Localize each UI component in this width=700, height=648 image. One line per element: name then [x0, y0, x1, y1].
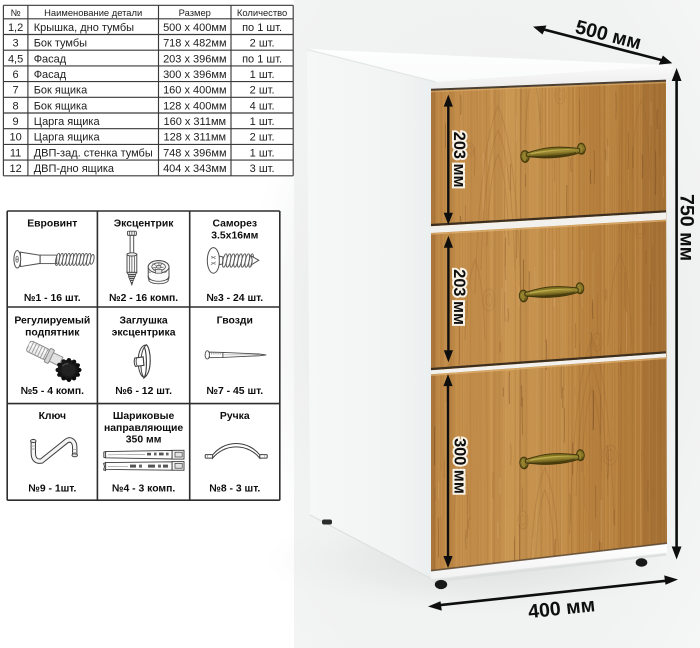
svg-text:128 х 311мм: 128 х 311мм [163, 132, 226, 144]
svg-text:по 1 шт.: по 1 шт. [242, 53, 282, 65]
svg-text:№4 - 3 комп.: №4 - 3 комп. [112, 484, 175, 495]
svg-text:12: 12 [9, 163, 21, 175]
svg-text:Бок ящика: Бок ящика [34, 100, 88, 112]
svg-text:7: 7 [13, 85, 19, 97]
svg-text:8: 8 [13, 100, 19, 112]
svg-text:Евровинт: Евровинт [27, 219, 77, 230]
svg-text:Царга ящика: Царга ящика [34, 116, 101, 128]
svg-text:1 шт.: 1 шт. [250, 147, 275, 159]
svg-text:350 мм: 350 мм [126, 435, 162, 446]
svg-text:1 шт.: 1 шт. [250, 69, 275, 81]
svg-text:Заглушка: Заглушка [119, 316, 167, 327]
svg-text:Шариковые: Шариковые [113, 411, 175, 422]
svg-text:Ручка: Ручка [220, 411, 250, 422]
svg-text:№3 - 24 шт.: №3 - 24 шт. [206, 293, 263, 304]
svg-text:404 х 343мм: 404 х 343мм [163, 163, 226, 175]
svg-text:№2 - 16 комп.: №2 - 16 комп. [109, 293, 178, 304]
svg-text:Гвозди: Гвозди [217, 316, 253, 327]
svg-text:10: 10 [9, 132, 21, 144]
svg-text:1 шт.: 1 шт. [250, 116, 275, 128]
svg-text:эксцентрика: эксцентрика [112, 327, 176, 338]
svg-text:300 х 396мм: 300 х 396мм [163, 69, 226, 81]
svg-text:Бок ящика: Бок ящика [34, 85, 88, 97]
svg-text:Крышка, дно тумбы: Крышка, дно тумбы [34, 22, 134, 34]
svg-text:748 х 396мм: 748 х 396мм [163, 147, 226, 159]
svg-text:3 шт.: 3 шт. [250, 163, 275, 175]
svg-text:№8 - 3 шт.: №8 - 3 шт. [209, 484, 260, 495]
svg-text:№: № [11, 7, 21, 18]
svg-text:160 х 400мм: 160 х 400мм [163, 85, 226, 97]
svg-text:подпятник: подпятник [25, 327, 80, 338]
svg-text:2 шт.: 2 шт. [250, 85, 275, 97]
svg-text:по 1 шт.: по 1 шт. [242, 22, 282, 34]
svg-text:6: 6 [13, 69, 19, 81]
svg-text:ДВП-зад. стенка тумбы: ДВП-зад. стенка тумбы [34, 147, 153, 159]
svg-text:2 шт.: 2 шт. [250, 38, 275, 50]
svg-text:4 шт.: 4 шт. [250, 100, 275, 112]
svg-text:Размер: Размер [179, 7, 211, 18]
svg-text:Саморез: Саморез [212, 219, 257, 230]
svg-text:№5 - 4 комп.: №5 - 4 комп. [21, 386, 84, 397]
svg-text:4,5: 4,5 [8, 53, 23, 65]
svg-text:№9 - 1шт.: №9 - 1шт. [28, 484, 76, 495]
svg-text:9: 9 [13, 116, 19, 128]
svg-text:№7 - 45 шт.: №7 - 45 шт. [206, 386, 263, 397]
svg-text:203 мм: 203 мм [450, 132, 468, 188]
svg-text:203 х 396мм: 203 х 396мм [163, 53, 226, 65]
svg-text:ДВП-дно ящика: ДВП-дно ящика [34, 163, 115, 175]
svg-text:11: 11 [10, 147, 21, 159]
svg-text:направляющие: направляющие [104, 423, 183, 434]
svg-text:Наименование детали: Наименование детали [44, 7, 142, 18]
svg-text:300 мм: 300 мм [450, 438, 468, 494]
svg-text:3.5х16мм: 3.5х16мм [211, 230, 258, 241]
svg-text:Бок тумбы: Бок тумбы [34, 38, 87, 50]
svg-text:Эксцентрик: Эксцентрик [114, 219, 174, 230]
svg-text:3: 3 [13, 38, 19, 50]
svg-text:Регулируемый: Регулируемый [14, 316, 90, 327]
svg-text:Фасад: Фасад [34, 69, 67, 81]
svg-text:128 х 400мм: 128 х 400мм [163, 100, 226, 112]
svg-text:160 х 311мм: 160 х 311мм [163, 116, 226, 128]
svg-text:Количество: Количество [237, 7, 287, 18]
svg-text:Царга ящика: Царга ящика [34, 132, 101, 144]
svg-text:2 шт.: 2 шт. [250, 132, 275, 144]
svg-text:Фасад: Фасад [34, 53, 67, 65]
svg-text:№1 - 16 шт.: №1 - 16 шт. [24, 293, 81, 304]
svg-text:500 х 400мм: 500 х 400мм [163, 22, 226, 34]
svg-text:203 мм: 203 мм [450, 269, 468, 325]
svg-text:№6 - 12 шт.: №6 - 12 шт. [115, 386, 172, 397]
svg-text:750 мм: 750 мм [676, 194, 698, 261]
svg-text:718 х 482мм: 718 х 482мм [163, 38, 226, 50]
svg-text:1,2: 1,2 [8, 22, 23, 34]
svg-text:Ключ: Ключ [39, 411, 66, 422]
